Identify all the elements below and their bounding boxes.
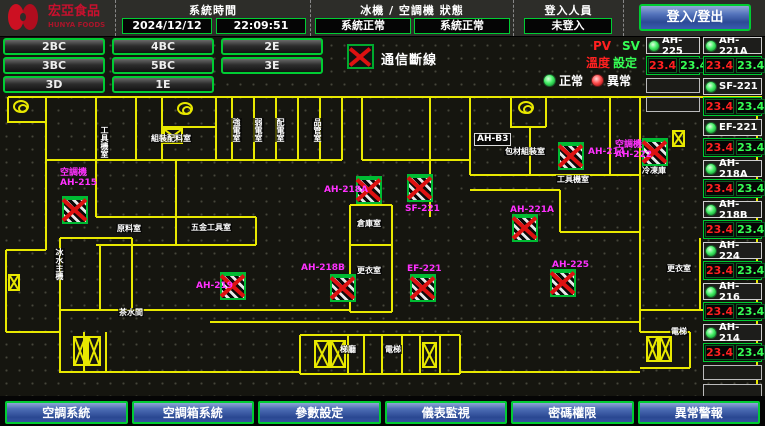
login-logout-button[interactable]: 登入/登出	[639, 4, 751, 31]
footer-button-密碼權限[interactable]: 密碼權限	[511, 401, 634, 424]
floor-button-4bc[interactable]: 4BC	[112, 38, 214, 55]
pv-value: 23.4	[705, 345, 734, 360]
login-section: 登入人員 未登入	[513, 0, 623, 36]
stairs-icon	[646, 336, 659, 362]
plan-unit-label-sf-221: SF-221	[405, 204, 440, 214]
sv-value: 23.4	[736, 263, 765, 278]
unit-name-label: AH-221A	[719, 35, 760, 57]
unit-row-ah-216[interactable]: AH-216	[703, 283, 762, 300]
plan-unit-commloss-icon-ef-221[interactable]	[410, 274, 436, 302]
stairs-icon	[73, 336, 87, 366]
stairs-icon	[422, 342, 437, 368]
system-time-label: 系統時間	[116, 2, 310, 18]
hmi-screen: { "header": { "logo": {"title": "宏亞食品", …	[0, 0, 765, 426]
abnormal-legend: 異常	[591, 72, 631, 89]
plan-unit-commloss-icon-ah-214[interactable]	[558, 142, 584, 170]
status-lamp-icon	[648, 40, 660, 52]
sv-value: 23.4	[736, 345, 765, 360]
stairs-icon	[672, 130, 685, 147]
unit-values-ef-221: 23.423.4	[703, 138, 762, 157]
room-label: 配電室	[275, 118, 286, 142]
plan-unit-label-ah-218a: AH-218A	[324, 185, 368, 195]
normal-lamp-icon	[543, 74, 556, 87]
login-user-value: 未登入	[524, 18, 612, 34]
floor-button-3e[interactable]: 3E	[221, 57, 323, 74]
unit-name-label: AH-224	[719, 240, 760, 262]
unit-values-ah-221a: 23.423.4	[703, 56, 762, 75]
pv-sublabel: 溫度	[586, 54, 610, 71]
stairwell-spiral-icon	[177, 102, 193, 115]
abnormal-lamp-icon	[591, 74, 604, 87]
unit-row-ah-214[interactable]: AH-214	[703, 324, 762, 341]
room-label: 電梯	[384, 345, 402, 354]
room-label: 組裝配料室	[150, 134, 192, 143]
unit-name-label: SF-221	[719, 81, 758, 92]
room-label: 電梯	[670, 327, 688, 336]
logo-icon	[8, 4, 42, 32]
room-label: 冰水主機	[54, 248, 65, 280]
sv-sublabel: 設定	[613, 54, 637, 71]
room-label: 弱電室	[253, 118, 264, 142]
normal-legend: 正常	[543, 72, 583, 89]
room-label: AH-B3	[474, 133, 511, 146]
floor-button-3d[interactable]: 3D	[3, 76, 105, 93]
pv-value: 23.4	[705, 304, 734, 319]
sv-value: 23.4	[736, 304, 765, 319]
stairs-icon	[659, 336, 672, 362]
unit-name-label: AH-218A	[719, 158, 760, 180]
plan-unit-label-ah-219: AH-219	[196, 281, 233, 291]
stairs-icon	[8, 274, 20, 291]
footer-nav: 空調系統空調箱系統參數設定儀表監視密碼權限異常警報	[0, 396, 765, 426]
unit-row-ah-218a[interactable]: AH-218A	[703, 160, 762, 177]
sv-value: 23.4	[736, 181, 765, 196]
floor-button-3bc[interactable]: 3BC	[3, 57, 105, 74]
unit-values-sf-221: 23.423.4	[703, 97, 762, 116]
floor-button-2bc[interactable]: 2BC	[3, 38, 105, 55]
footer-button-異常警報[interactable]: 異常警報	[638, 401, 761, 424]
unit-row-ah-224[interactable]: AH-224	[703, 242, 762, 259]
room-label: 冷凍庫	[641, 166, 667, 175]
plan-unit-label-ah-218b: AH-218B	[301, 263, 345, 273]
pv-value: 23.4	[705, 181, 734, 196]
plan-unit-commloss-icon-ah-218b[interactable]	[330, 274, 356, 302]
unit-row-ah-221a[interactable]: AH-221A	[703, 37, 762, 54]
status-lamp-icon	[705, 245, 717, 257]
stairwell-spiral-icon	[518, 101, 534, 114]
floor-nav-row: 3D1E	[3, 76, 330, 93]
floor-button-1e[interactable]: 1E	[112, 76, 214, 93]
unit-name-label: EF-221	[719, 122, 757, 133]
room-label: 更衣室	[666, 264, 692, 273]
unit-name-label: AH-214	[719, 322, 760, 344]
floor-button-5bc[interactable]: 5BC	[112, 57, 214, 74]
footer-button-參數設定[interactable]: 參數設定	[258, 401, 381, 424]
unit-row-ef-221[interactable]: EF-221	[703, 119, 762, 136]
comm-loss-icon	[347, 44, 374, 69]
units-panel-right: AH-221A23.423.4SF-22123.423.4EF-22123.42…	[703, 37, 762, 403]
unit-values-ah-225: 23.423.4	[646, 56, 700, 75]
unit-values-ah-216: 23.423.4	[703, 302, 762, 321]
ahu-status-value: 系統正常	[414, 18, 510, 34]
status-lamp-icon	[705, 286, 717, 298]
unit-values-ah-218a: 23.423.4	[703, 179, 762, 198]
room-label: 工具機室	[556, 175, 590, 184]
status-lamp-icon	[705, 122, 717, 134]
plan-unit-label-ah-225: AH-225	[552, 260, 589, 270]
machine-status-label: 冰機 / 空調機 狀態	[311, 2, 513, 18]
stairs-icon	[87, 336, 101, 366]
login-button-section: 登入/登出	[623, 0, 765, 36]
stairwell-spiral-icon	[13, 100, 29, 113]
status-lamp-icon	[705, 204, 717, 216]
unit-row-ah-218b[interactable]: AH-218B	[703, 201, 762, 218]
empty-unit-slot	[646, 78, 700, 93]
system-date-value: 2024/12/12	[122, 18, 212, 34]
pv-value: 23.4	[705, 99, 734, 114]
plan-unit-commloss-icon-ah-215[interactable]	[62, 196, 88, 224]
floor-nav-row: 2BC4BC2E	[3, 38, 330, 55]
room-label: 品管室	[312, 118, 323, 142]
sv-value: 23.4	[736, 222, 765, 237]
unit-row-ah-225[interactable]: AH-225	[646, 37, 700, 54]
comm-loss-label: 通信斷線	[381, 49, 437, 68]
status-lamp-icon	[705, 81, 717, 93]
sv-value: 23.4	[736, 99, 765, 114]
header-bar: 宏亞食品 HUNYA FOODS 系統時間 2024/12/12 22:09:5…	[0, 0, 765, 37]
sv-value: 23.4	[736, 140, 765, 155]
empty-unit-slot	[703, 365, 762, 380]
sv-value: 23.4	[736, 58, 765, 73]
unit-values-ah-224: 23.423.4	[703, 261, 762, 280]
logo: 宏亞食品 HUNYA FOODS	[0, 0, 115, 36]
system-clock-value: 22:09:51	[216, 18, 306, 34]
plan-unit-label-ah-222: 空調機AH-222	[615, 140, 652, 160]
logo-subtitle: HUNYA FOODS	[48, 21, 105, 29]
footer-button-儀表監視[interactable]: 儀表監視	[385, 401, 508, 424]
sv-header: SV	[622, 39, 640, 53]
unit-row-sf-221[interactable]: SF-221	[703, 78, 762, 95]
unit-values-ah-214: 23.423.4	[703, 343, 762, 362]
pv-value: 23.4	[648, 58, 677, 73]
plan-unit-commloss-icon-ah-225[interactable]	[550, 269, 576, 297]
stairs-icon	[314, 340, 330, 368]
unit-values-ah-218b: 23.423.4	[703, 220, 762, 239]
room-label: 工具機室	[99, 126, 110, 158]
room-label: 包材組裝室	[504, 147, 546, 156]
plan-unit-commloss-icon-sf-221[interactable]	[407, 174, 433, 202]
pv-value: 23.4	[705, 140, 734, 155]
status-lamp-icon	[705, 40, 717, 52]
empty-unit-slot	[646, 97, 700, 112]
pv-value: 23.4	[705, 222, 734, 237]
room-label: 五金工具室	[190, 223, 232, 232]
unit-name-label: AH-225	[662, 35, 698, 57]
status-lamp-icon	[705, 163, 717, 175]
unit-name-label: AH-216	[719, 281, 760, 303]
pv-value: 23.4	[705, 263, 734, 278]
units-panel-left: AH-22523.423.4	[646, 37, 700, 116]
status-lamp-icon	[705, 327, 717, 339]
plan-unit-label-ef-221: EF-221	[407, 264, 442, 274]
floor-button-2e[interactable]: 2E	[221, 38, 323, 55]
system-time-section: 系統時間 2024/12/12 22:09:51	[115, 0, 310, 36]
pv-header: PV	[593, 39, 611, 53]
floor-nav-row: 3BC5BC3E	[3, 57, 330, 74]
unit-name-label: AH-218B	[719, 199, 760, 221]
plan-unit-label-ah-221a: AH-221A	[510, 205, 554, 215]
footer-button-空調系統[interactable]: 空調系統	[5, 401, 128, 424]
pv-value: 23.4	[705, 58, 734, 73]
chiller-status-value: 系統正常	[315, 18, 411, 34]
room-label: 更衣室	[356, 266, 382, 275]
logo-title: 宏亞食品	[48, 5, 100, 18]
floor-nav: 2BC4BC2E3BC5BC3E3D1E	[3, 38, 330, 95]
room-label: 強電室	[231, 118, 242, 142]
plan-unit-commloss-icon-ah-221a[interactable]	[512, 214, 538, 242]
machine-status-section: 冰機 / 空調機 狀態 系統正常 系統正常	[310, 0, 513, 36]
footer-button-空調箱系統[interactable]: 空調箱系統	[132, 401, 255, 424]
room-label: 茶水間	[118, 308, 144, 317]
login-label: 登入人員	[514, 2, 623, 18]
plan-unit-label-ah-215: 空調機AH-215	[60, 168, 97, 188]
room-label: 倉庫室	[356, 219, 382, 228]
room-label: 原料室	[116, 224, 142, 233]
room-label: 梯廳	[339, 345, 357, 354]
